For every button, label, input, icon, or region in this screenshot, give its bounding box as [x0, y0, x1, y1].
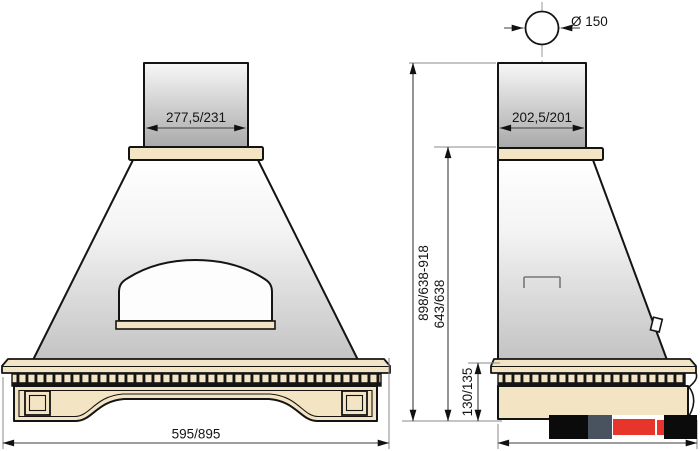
side-view: Ø 150 202,5/201 898/638-918 643/638 130/… — [402, 2, 697, 449]
front-cornice-cap — [2, 359, 390, 373]
front-chimney — [144, 63, 248, 148]
hood-dimension-drawing: 277,5/231 595/895 Ø 150 202,5/201 — [0, 0, 700, 451]
front-left-rosette — [25, 391, 50, 415]
dim-side-chimney-depth: 202,5/201 — [512, 110, 572, 125]
dim-front-chimney-width: 277,5/231 — [166, 110, 226, 125]
side-chimney-shelf — [498, 148, 603, 160]
dim-front-total-width: 595/895 — [172, 427, 221, 442]
side-switch-knob — [650, 317, 662, 332]
side-chimney — [498, 63, 586, 148]
watermark-logo — [549, 415, 697, 439]
front-bottom-panel — [14, 386, 377, 421]
logo-block-black-left — [549, 415, 588, 439]
front-view: 277,5/231 595/895 — [2, 63, 390, 449]
logo-block-black-right — [664, 415, 697, 439]
dim-cornice-height: 130/135 — [460, 368, 475, 417]
logo-block-red-small — [657, 420, 664, 435]
side-bottom-panel — [498, 386, 688, 419]
side-cornice-cap — [491, 359, 696, 373]
dim-body-height: 643/638 — [432, 280, 447, 329]
drawing-canvas: 277,5/231 595/895 Ø 150 202,5/201 — [0, 0, 700, 451]
logo-block-red-text — [613, 419, 655, 435]
side-dentil-molding — [498, 374, 685, 386]
front-vent-shelf — [116, 321, 275, 329]
front-right-rosette — [342, 391, 367, 415]
duct-outlet-circle — [526, 12, 559, 45]
logo-block-slate — [588, 415, 613, 439]
dim-total-height: 898/638-918 — [416, 245, 431, 321]
side-hood-body — [498, 160, 667, 360]
front-chimney-shelf — [129, 147, 263, 160]
front-dentil-molding — [12, 374, 381, 386]
dim-duct-diameter: Ø 150 — [571, 14, 608, 29]
